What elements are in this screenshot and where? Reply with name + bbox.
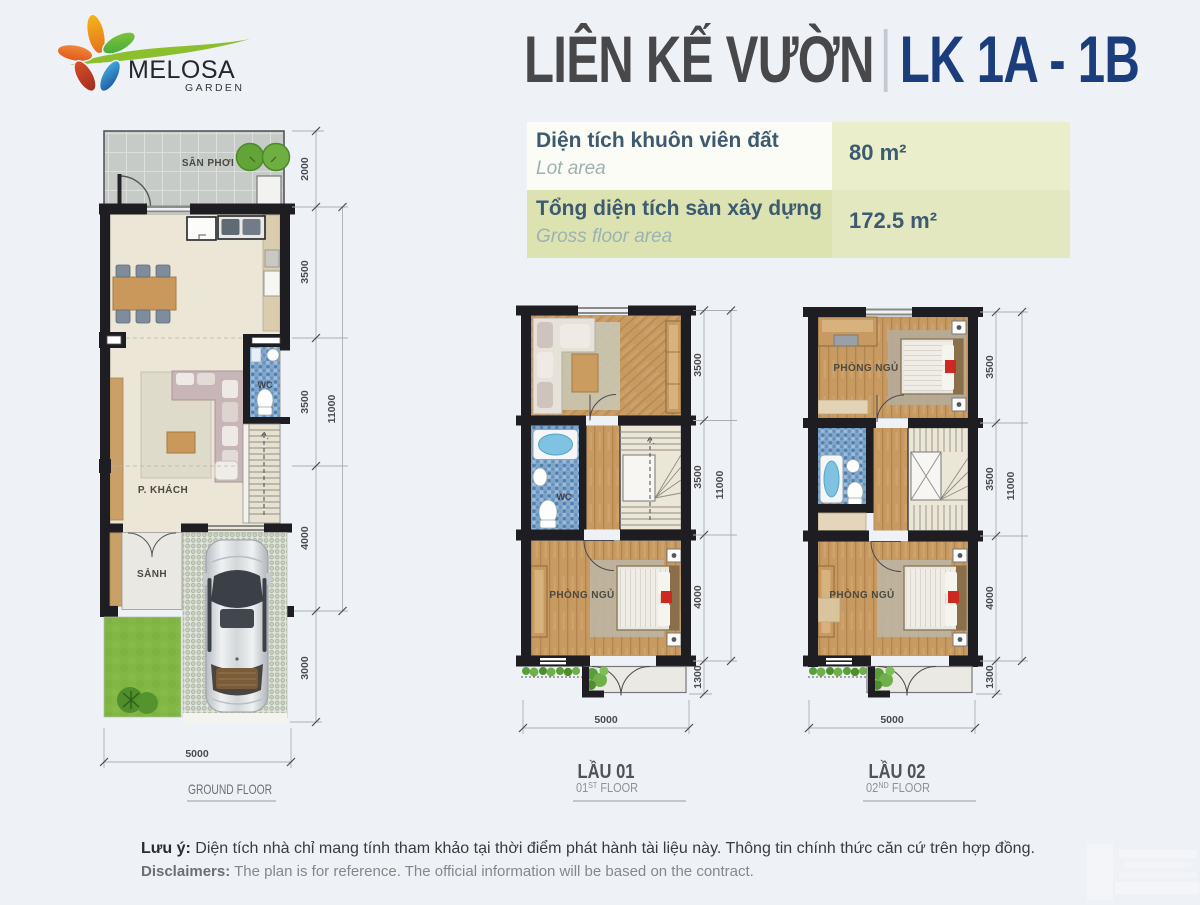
svg-text:SẢNH: SẢNH (137, 567, 167, 580)
svg-text:11000: 11000 (1005, 472, 1017, 501)
svg-text:3500: 3500 (984, 355, 996, 379)
svg-text:3500: 3500 (299, 260, 311, 284)
svg-text:WC: WC (557, 492, 572, 502)
svg-text:3500: 3500 (984, 467, 996, 491)
svg-text:11000: 11000 (326, 395, 338, 424)
svg-text:P. KHÁCH: P. KHÁCH (138, 483, 188, 496)
svg-text:GROUND FLOOR: GROUND FLOOR (188, 781, 272, 797)
svg-text:4000: 4000 (692, 585, 704, 609)
svg-text:11000: 11000 (714, 471, 726, 500)
svg-text:PHÒNG NGỦ: PHÒNG NGỦ (549, 588, 614, 601)
svg-text:5000: 5000 (880, 714, 904, 726)
svg-text:2000: 2000 (299, 157, 311, 181)
svg-text:4000: 4000 (984, 586, 996, 610)
svg-text:WC: WC (258, 380, 273, 390)
svg-text:3500: 3500 (692, 465, 704, 489)
svg-text:5000: 5000 (594, 714, 618, 726)
svg-text:01ST FLOOR: 01ST FLOOR (576, 780, 638, 795)
svg-text:02ND FLOOR: 02ND FLOOR (866, 780, 930, 795)
svg-text:PHÒNG NGỦ: PHÒNG NGỦ (833, 361, 898, 374)
svg-text:3500: 3500 (299, 390, 311, 414)
svg-text:3500: 3500 (692, 353, 704, 377)
svg-text:1300: 1300 (692, 665, 704, 689)
svg-text:3000: 3000 (299, 656, 311, 680)
svg-text:5000: 5000 (185, 748, 209, 760)
svg-text:4000: 4000 (299, 526, 311, 550)
svg-text:1300: 1300 (984, 665, 996, 689)
svg-text:PHÒNG NGỦ: PHÒNG NGỦ (829, 588, 894, 601)
svg-text:SÂN PHƠI: SÂN PHƠI (182, 156, 234, 169)
